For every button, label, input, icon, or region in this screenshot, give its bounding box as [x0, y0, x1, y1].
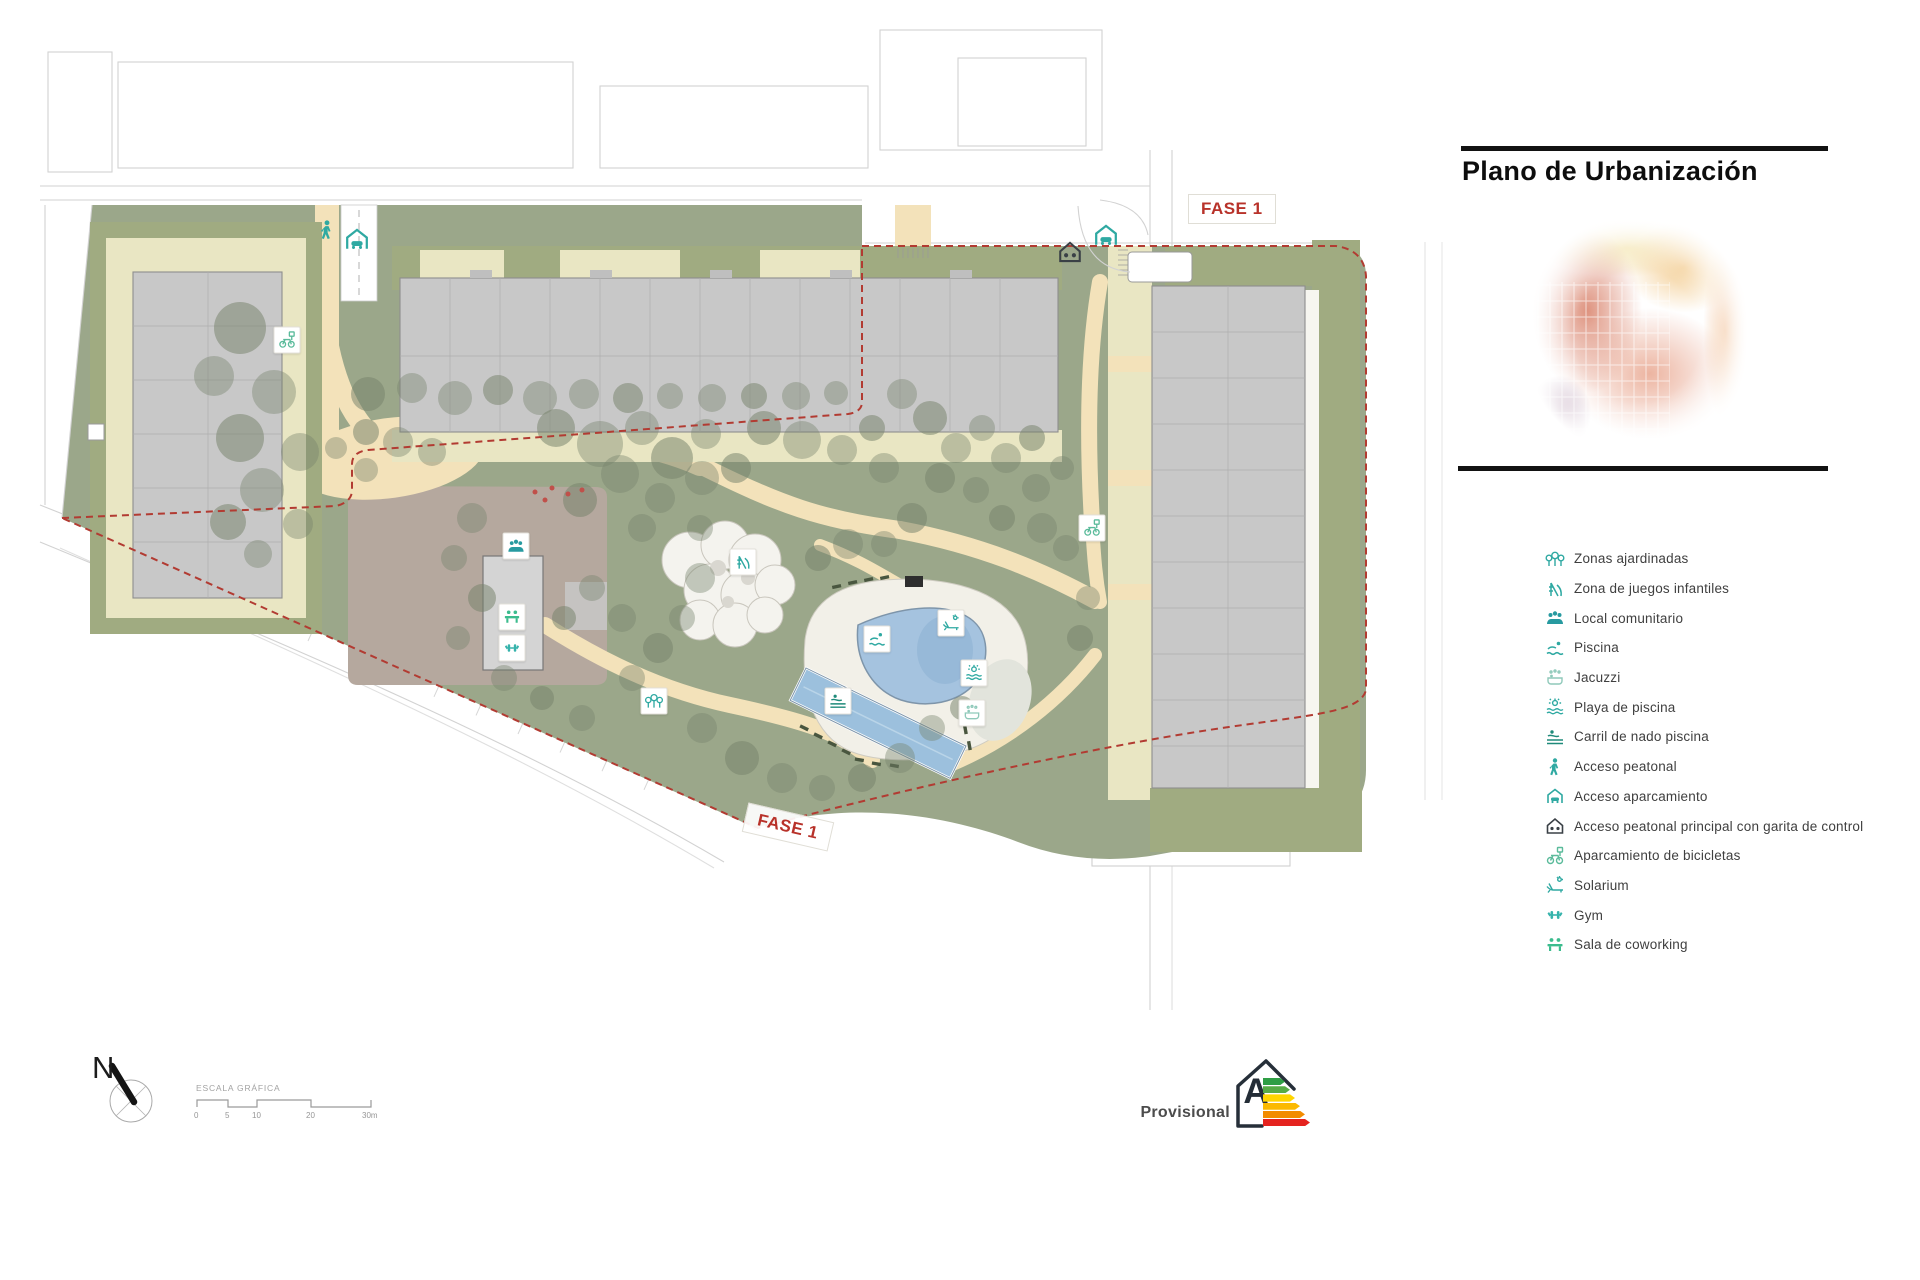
legend-item-label: Jacuzzi: [1574, 670, 1620, 685]
legend-item: Zona de juegos infantiles: [1545, 574, 1875, 604]
energy-bar: [1263, 1119, 1310, 1126]
swim-lane-icon: [1545, 727, 1565, 747]
gym-icon: [1545, 905, 1565, 925]
energy-bar: [1263, 1111, 1305, 1118]
legend-item-label: Sala de coworking: [1574, 937, 1688, 952]
coworking-marker: [499, 604, 526, 631]
north-letter: N: [92, 1050, 114, 1086]
parking-access-marker: [1092, 221, 1120, 249]
trees-icon: [645, 692, 664, 711]
legend-item-label: Playa de piscina: [1574, 700, 1676, 715]
pool-icon: [1545, 638, 1565, 658]
energy-bar: [1263, 1094, 1295, 1101]
community-icon: [507, 537, 526, 556]
playground-icon: [1545, 579, 1565, 599]
legend-item-label: Piscina: [1574, 640, 1619, 655]
community-marker: [503, 533, 530, 560]
legend-item: Carril de nado piscina: [1545, 722, 1875, 752]
community-icon: [1545, 608, 1565, 628]
jacuzzi-icon: [1545, 668, 1565, 688]
legend-item: Zonas ajardinadas: [1545, 544, 1875, 574]
legend-item-label: Gym: [1574, 908, 1603, 923]
trees-icon: [1545, 549, 1565, 569]
scale-tick-label: 30m: [362, 1111, 378, 1120]
playground-marker: [730, 549, 757, 576]
scale-tick-label: 10: [252, 1111, 261, 1120]
scale-tick-label: 20: [306, 1111, 315, 1120]
legend-item-label: Solarium: [1574, 878, 1629, 893]
main-access-marker: [1057, 239, 1083, 265]
pedestrian-icon: [1545, 757, 1565, 777]
pool-beach-icon: [965, 664, 984, 683]
legend-item: Acceso peatonal principal con garita de …: [1545, 811, 1875, 841]
legend-item-label: Aparcamiento de bicicletas: [1574, 848, 1741, 863]
bike-parking-icon: [278, 331, 297, 350]
playground-icon: [734, 553, 753, 572]
pool-beach-marker: [961, 660, 988, 687]
parking-access-icon: [1545, 786, 1565, 806]
legend-item: Acceso aparcamiento: [1545, 782, 1875, 812]
page-title: Plano de Urbanización: [1462, 156, 1758, 187]
title-rule-bottom: [1458, 466, 1828, 471]
energy-bar: [1263, 1078, 1285, 1085]
swim-lane-marker: [825, 688, 852, 715]
legend: Zonas ajardinadasZona de juegos infantil…: [1545, 544, 1875, 960]
pool-icon: [868, 630, 887, 649]
trees-marker: [641, 688, 668, 715]
scale-tick-label: 5: [225, 1111, 229, 1120]
parking-access-icon: [343, 225, 371, 253]
legend-item: Piscina: [1545, 633, 1875, 663]
gym-icon: [503, 639, 522, 658]
scale-bar: [197, 1100, 371, 1107]
pool-beach-icon: [1545, 697, 1565, 717]
energy-bar: [1263, 1086, 1290, 1093]
page-canvas: Plano de Urbanización Zonas ajardinadasZ…: [0, 0, 1920, 1280]
pedestrian-icon: [316, 219, 338, 241]
phase-label-top: FASE 1: [1188, 194, 1276, 224]
energy-bar: [1263, 1103, 1300, 1110]
parking-access-icon: [1092, 221, 1120, 249]
bike-parking-icon: [1083, 519, 1102, 538]
coworking-icon: [503, 608, 522, 627]
main-access-icon: [1057, 239, 1083, 265]
pedestrian-marker: [316, 219, 338, 241]
solarium-marker: [938, 610, 965, 637]
pool-marker: [864, 626, 891, 653]
legend-item-label: Acceso peatonal principal con garita de …: [1574, 819, 1863, 834]
building-top: [392, 246, 1062, 462]
legend-item-label: Acceso aparcamiento: [1574, 789, 1708, 804]
bike-parking-marker: [1079, 515, 1106, 542]
jacuzzi-marker: [959, 700, 986, 727]
solarium-icon: [942, 614, 961, 633]
title-rule-top: [1461, 146, 1828, 151]
scale-tick-label: 0: [194, 1111, 198, 1120]
legend-item-label: Zonas ajardinadas: [1574, 551, 1688, 566]
legend-item: Aparcamiento de bicicletas: [1545, 841, 1875, 871]
legend-item: Local comunitario: [1545, 603, 1875, 633]
legend-item: Solarium: [1545, 871, 1875, 901]
building-left: [88, 222, 322, 634]
legend-item-label: Acceso peatonal: [1574, 759, 1677, 774]
solarium-icon: [1545, 875, 1565, 895]
legend-item-label: Zona de juegos infantiles: [1574, 581, 1729, 596]
swim-lane-icon: [829, 692, 848, 711]
scale-bar-label: ESCALA GRÁFICA: [196, 1083, 280, 1093]
legend-item: Jacuzzi: [1545, 663, 1875, 693]
legend-item: Playa de piscina: [1545, 692, 1875, 722]
legend-item-label: Carril de nado piscina: [1574, 729, 1709, 744]
bike-parking-icon: [1545, 846, 1565, 866]
gym-marker: [499, 635, 526, 662]
building-render-image: [1523, 214, 1753, 456]
main-access-icon: [1545, 816, 1565, 836]
jacuzzi-icon: [963, 704, 982, 723]
coworking-icon: [1545, 935, 1565, 955]
legend-item: Acceso peatonal: [1545, 752, 1875, 782]
energy-rating-bars: [1263, 1078, 1310, 1127]
energy-provisional-label: Provisional: [1098, 1104, 1230, 1122]
legend-item-label: Local comunitario: [1574, 611, 1683, 626]
bike-parking-marker: [274, 327, 301, 354]
north-compass: [110, 1066, 152, 1122]
legend-item: Sala de coworking: [1545, 930, 1875, 960]
legend-item: Gym: [1545, 900, 1875, 930]
parking-access-marker: [343, 225, 371, 253]
